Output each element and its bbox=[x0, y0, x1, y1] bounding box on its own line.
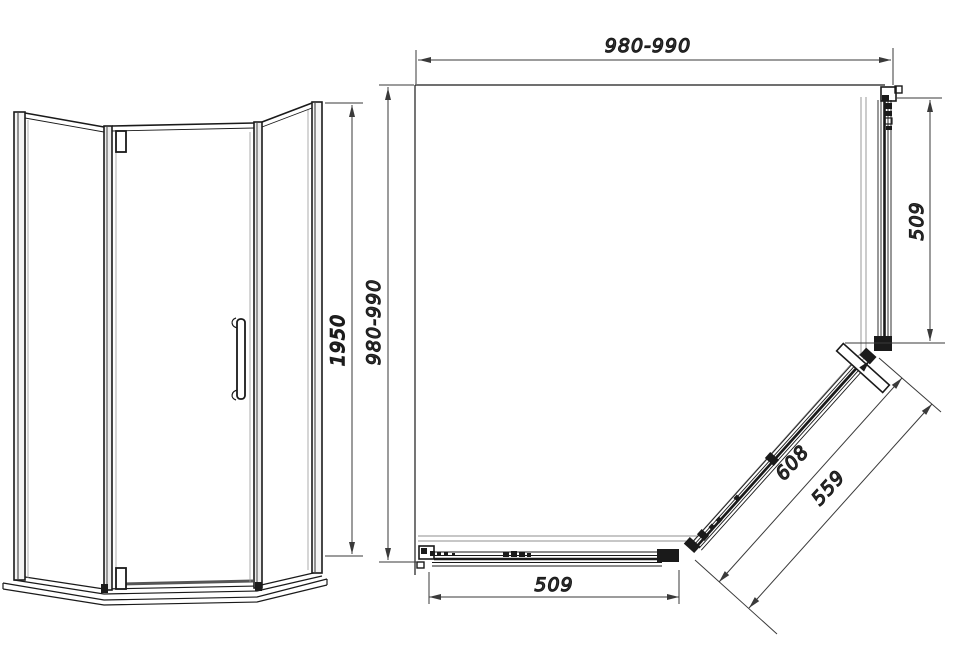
plan-right-panel bbox=[878, 100, 891, 345]
elevation-right-post bbox=[312, 102, 322, 573]
technical-drawing: 1950 bbox=[0, 0, 954, 670]
elevation-tray bbox=[3, 571, 327, 605]
door-right-foot bbox=[255, 582, 262, 591]
plan-door-bottom-hinge bbox=[657, 516, 723, 562]
plan-door-top-hinge bbox=[859, 336, 892, 364]
elevation-top-frame bbox=[25, 103, 312, 132]
elevation-view: 1950 bbox=[3, 102, 363, 605]
door-left-foot bbox=[101, 584, 108, 593]
plan-door-clamp bbox=[733, 452, 779, 502]
door-top-hinge bbox=[116, 131, 126, 152]
dim-right-panel bbox=[845, 98, 945, 343]
dim-plan-width-label: 980-990 bbox=[605, 35, 691, 57]
elevation-left-post bbox=[14, 112, 25, 580]
dim-plan-depth-label: 980-990 bbox=[363, 279, 385, 365]
plan-bottom-panel bbox=[432, 552, 662, 566]
dim-elevation-height-label: 1950 bbox=[327, 314, 349, 366]
door-bottom-block bbox=[116, 568, 126, 589]
door-handle bbox=[232, 318, 245, 400]
elevation-glass-edges bbox=[28, 110, 308, 585]
plan-view: 980-990 980-990 509 509 bbox=[363, 35, 945, 634]
plan-bottom-wall-profile bbox=[417, 546, 455, 568]
dim-right-panel-label: 509 bbox=[906, 201, 928, 240]
plan-tray-outline bbox=[418, 97, 866, 541]
dim-bottom-panel-label: 509 bbox=[534, 574, 573, 596]
